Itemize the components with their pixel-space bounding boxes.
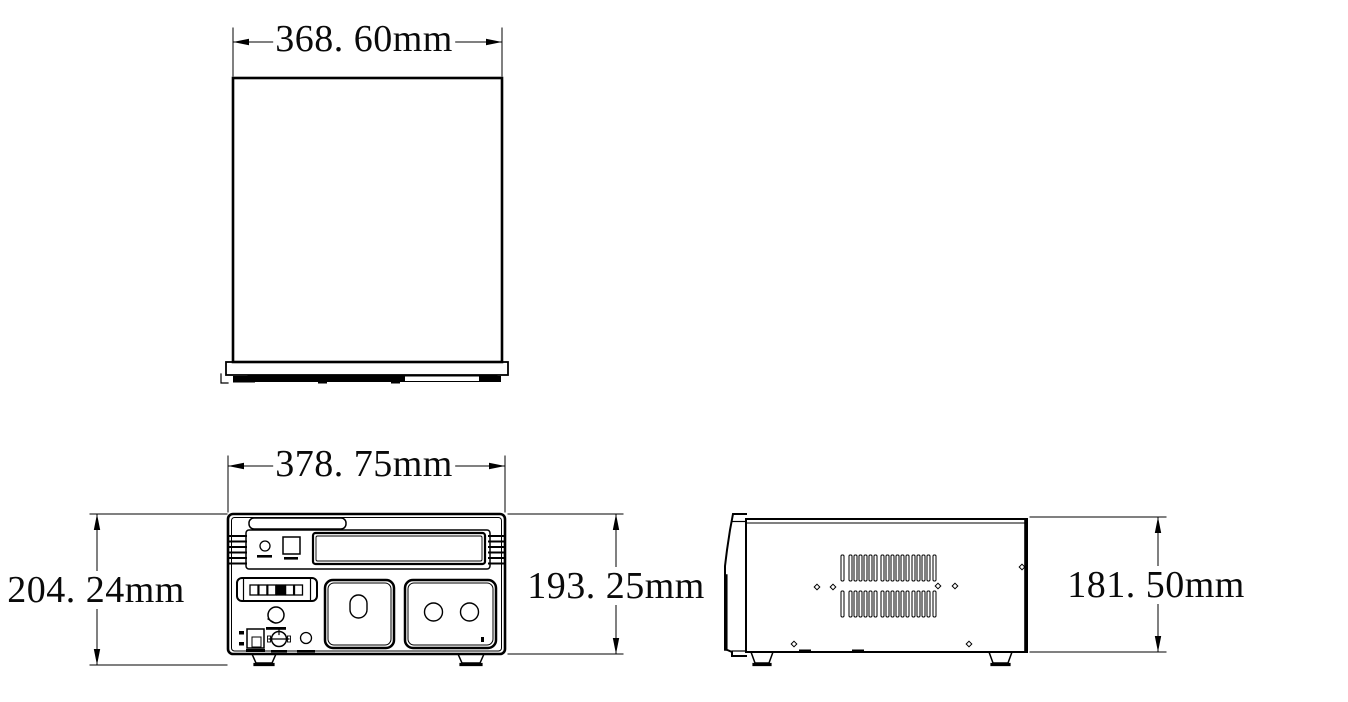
square-button-label-mark [284, 557, 298, 560]
left-module-panel [325, 580, 394, 648]
strip-button[interactable] [295, 585, 303, 595]
arrow-down-icon [613, 638, 619, 654]
arrow-left-icon [228, 463, 244, 469]
strip-button[interactable] [259, 585, 267, 595]
din-connector[interactable] [268, 630, 291, 647]
push-button[interactable] [260, 541, 270, 551]
side-view [725, 514, 1027, 665]
dim-label-front-body-height: 193. 25mm [525, 567, 707, 605]
top-view [221, 78, 508, 384]
push-button-label-mark [257, 555, 272, 558]
arrow-right-icon [486, 39, 502, 45]
button-strip [237, 578, 317, 601]
top-view-right-foot-mark [479, 376, 501, 382]
front-view [228, 514, 505, 665]
obround-opening [350, 595, 367, 618]
arrow-right-icon [489, 463, 505, 469]
dim-label-side-height: 181. 50mm [1065, 566, 1247, 604]
drawing-canvas: 368. 60mm 378. 75mm 204. 24mm 193. 25mm … [0, 0, 1348, 702]
switch-label-mark [246, 649, 265, 652]
screw-marks [791, 564, 1025, 647]
top-slot [249, 518, 346, 529]
square-button[interactable] [283, 537, 300, 554]
jack-label-mark [297, 650, 315, 653]
display-window [313, 533, 485, 564]
vent-slots-row-1 [841, 555, 936, 581]
dim-label-top-width: 368. 60mm [273, 20, 455, 58]
round-opening [425, 603, 443, 621]
arrow-up-icon [94, 514, 100, 530]
right-module-panel [405, 580, 496, 648]
arrow-down-icon [1155, 636, 1161, 652]
knob-label-mark [266, 627, 286, 630]
strip-button[interactable] [286, 585, 294, 595]
power-switch[interactable] [247, 629, 264, 648]
round-jack[interactable] [301, 633, 312, 644]
side-bezel [725, 514, 746, 656]
round-opening [461, 603, 479, 621]
dim-label-front-total-height: 204. 24mm [5, 571, 187, 609]
vent-slots-row-2 [841, 591, 936, 617]
side-feet [751, 652, 1012, 665]
arrow-up-icon [613, 514, 619, 530]
strip-button[interactable] [268, 585, 276, 595]
front-feet [252, 654, 484, 665]
arrow-up-icon [1155, 517, 1161, 533]
dim-label-front-width: 378. 75mm [273, 445, 455, 483]
arrow-left-icon [233, 39, 249, 45]
top-view-left-foot-mark [233, 376, 255, 383]
arrow-down-icon [94, 649, 100, 665]
connector-label-mark [271, 650, 287, 653]
strip-button-active[interactable] [277, 585, 285, 595]
strip-button[interactable] [250, 585, 258, 595]
